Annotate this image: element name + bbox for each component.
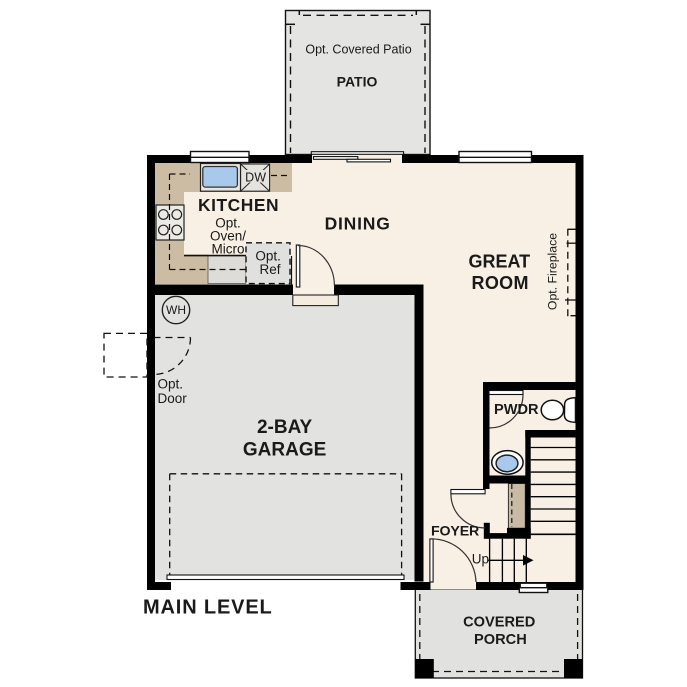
svg-text:WH: WH <box>166 303 186 317</box>
svg-text:PWDR: PWDR <box>494 402 539 418</box>
svg-text:GARAGE: GARAGE <box>243 439 326 460</box>
svg-text:Opt. Fireplace: Opt. Fireplace <box>545 233 559 310</box>
svg-text:DW: DW <box>245 171 266 185</box>
svg-text:Opt.: Opt. <box>158 377 184 392</box>
svg-text:Ref: Ref <box>259 262 280 277</box>
svg-text:ROOM: ROOM <box>471 273 528 293</box>
svg-text:COVERED: COVERED <box>463 615 535 631</box>
svg-text:Opt. Covered Patio: Opt. Covered Patio <box>305 43 411 57</box>
svg-text:2-BAY: 2-BAY <box>257 417 313 438</box>
svg-text:KITCHEN: KITCHEN <box>198 195 279 215</box>
svg-text:FOYER: FOYER <box>431 523 479 539</box>
svg-text:PORCH: PORCH <box>474 632 527 648</box>
svg-text:GREAT: GREAT <box>468 251 530 271</box>
svg-text:Micro: Micro <box>212 241 245 256</box>
svg-text:MAIN LEVEL: MAIN LEVEL <box>143 597 273 619</box>
svg-text:Door: Door <box>158 391 188 406</box>
svg-text:PATIO: PATIO <box>337 74 378 90</box>
svg-text:Up: Up <box>472 552 489 567</box>
svg-text:DINING: DINING <box>325 213 391 233</box>
